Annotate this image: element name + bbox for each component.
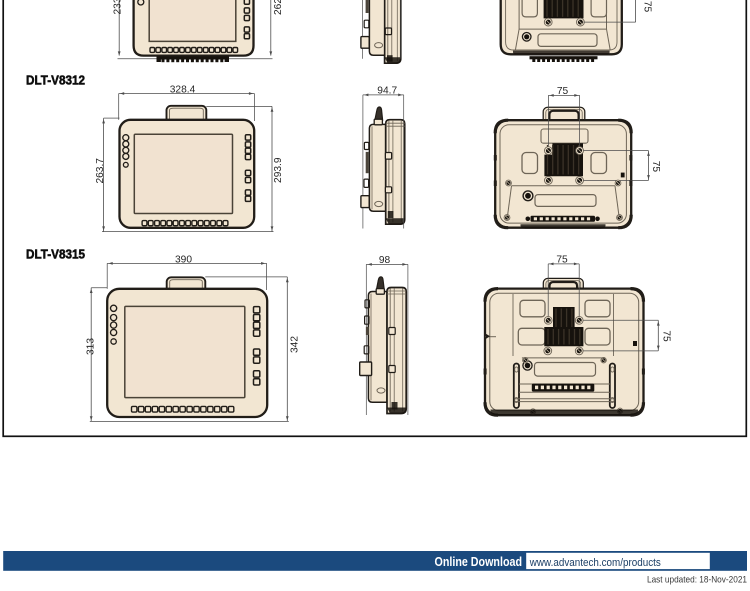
svg-text:262.5: 262.5 xyxy=(273,0,284,15)
svg-text:75: 75 xyxy=(650,161,661,173)
svg-text:293.9: 293.9 xyxy=(273,157,284,183)
svg-text:233.9: 233.9 xyxy=(112,0,123,15)
svg-text:94.7: 94.7 xyxy=(377,85,397,96)
svg-text:75: 75 xyxy=(557,86,569,97)
svg-text:390: 390 xyxy=(175,254,192,265)
svg-text:75: 75 xyxy=(642,1,653,13)
svg-text:263.7: 263.7 xyxy=(95,158,106,184)
svg-text:DLT-V8315: DLT-V8315 xyxy=(26,246,85,261)
svg-text:98: 98 xyxy=(379,255,391,266)
svg-text:328.4: 328.4 xyxy=(170,84,196,95)
svg-text:Online Download: Online Download xyxy=(435,555,523,569)
svg-text:DLT-V8312: DLT-V8312 xyxy=(26,73,85,88)
svg-text:Last updated: 18-Nov-2021: Last updated: 18-Nov-2021 xyxy=(647,575,747,585)
svg-text:342: 342 xyxy=(289,336,300,353)
svg-text:www.advantech.com/products: www.advantech.com/products xyxy=(529,557,661,569)
svg-text:313: 313 xyxy=(85,338,96,355)
svg-text:75: 75 xyxy=(556,254,568,265)
svg-text:75: 75 xyxy=(661,330,672,342)
